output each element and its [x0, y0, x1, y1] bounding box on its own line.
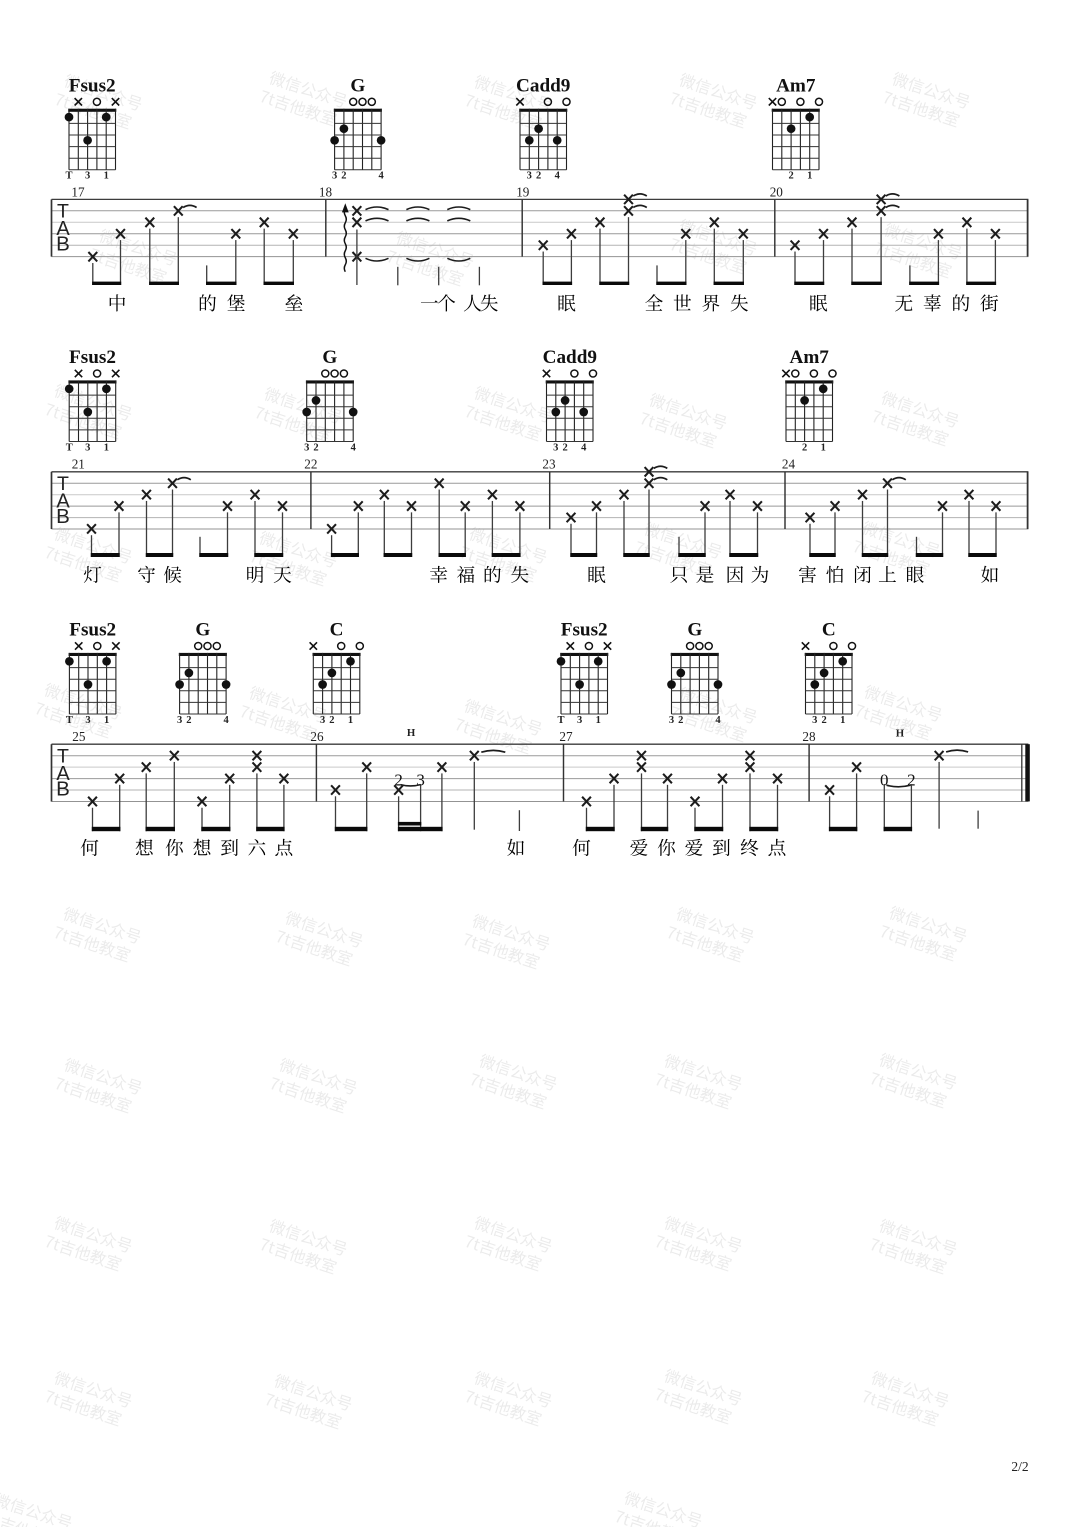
svg-text:G: G	[322, 347, 337, 368]
svg-text:Am7: Am7	[776, 75, 816, 96]
svg-text:20: 20	[770, 184, 784, 199]
svg-text:25: 25	[72, 729, 86, 744]
svg-text:4: 4	[378, 171, 384, 182]
svg-text:B: B	[56, 777, 70, 800]
svg-text:B: B	[56, 505, 70, 528]
svg-text:Fsus2: Fsus2	[561, 620, 608, 641]
svg-text:G: G	[195, 620, 210, 641]
svg-text:C: C	[330, 620, 344, 641]
svg-text:28: 28	[802, 729, 816, 744]
svg-text:H: H	[896, 728, 905, 740]
svg-text:T: T	[65, 171, 72, 182]
svg-text:3: 3	[85, 715, 90, 726]
svg-text:Cadd9: Cadd9	[516, 75, 570, 96]
svg-text:2: 2	[329, 715, 334, 726]
svg-text:19: 19	[516, 184, 530, 199]
svg-text:G: G	[687, 620, 702, 641]
svg-text:T: T	[66, 715, 73, 726]
svg-text:4: 4	[555, 171, 561, 182]
svg-text:22: 22	[304, 457, 317, 472]
svg-text:1: 1	[821, 442, 826, 453]
svg-text:Am7: Am7	[789, 347, 829, 368]
svg-text:3: 3	[85, 171, 90, 182]
svg-text:2: 2	[788, 171, 793, 182]
svg-text:24: 24	[782, 457, 796, 472]
svg-text:2: 2	[341, 171, 346, 182]
svg-text:1: 1	[104, 171, 109, 182]
svg-text:Fsus2: Fsus2	[69, 347, 116, 368]
svg-text:3: 3	[577, 715, 582, 726]
svg-text:23: 23	[542, 457, 556, 472]
svg-text:3: 3	[527, 171, 532, 182]
svg-text:2: 2	[802, 442, 807, 453]
svg-text:2: 2	[562, 442, 567, 453]
svg-text:21: 21	[72, 457, 85, 472]
svg-text:26: 26	[310, 729, 324, 744]
svg-text:3: 3	[85, 442, 90, 453]
svg-text:Fsus2: Fsus2	[69, 75, 116, 96]
svg-text:1: 1	[104, 715, 109, 726]
svg-text:1: 1	[807, 171, 812, 182]
svg-text:3: 3	[669, 715, 674, 726]
svg-text:3: 3	[304, 442, 309, 453]
svg-text:2: 2	[678, 715, 683, 726]
svg-text:1: 1	[596, 715, 601, 726]
svg-text:3: 3	[812, 715, 817, 726]
svg-text:3: 3	[332, 171, 337, 182]
svg-text:4: 4	[223, 715, 229, 726]
svg-text:2: 2	[313, 442, 318, 453]
svg-text:27: 27	[559, 729, 573, 744]
svg-text:Cadd9: Cadd9	[543, 347, 597, 368]
svg-text:4: 4	[715, 715, 721, 726]
svg-text:3: 3	[553, 442, 558, 453]
svg-text:18: 18	[319, 184, 333, 199]
svg-text:4: 4	[351, 442, 357, 453]
svg-text:Fsus2: Fsus2	[69, 620, 116, 641]
svg-text:G: G	[350, 75, 365, 96]
svg-text:B: B	[56, 233, 70, 256]
svg-text:3: 3	[320, 715, 325, 726]
svg-text:T: T	[66, 442, 73, 453]
svg-text:T: T	[557, 715, 564, 726]
svg-text:17: 17	[71, 184, 85, 199]
svg-text:2: 2	[536, 171, 541, 182]
svg-text:C: C	[822, 620, 836, 641]
svg-text:4: 4	[581, 442, 587, 453]
svg-text:2: 2	[821, 715, 826, 726]
svg-text:H: H	[407, 727, 416, 739]
svg-text:1: 1	[348, 715, 353, 726]
svg-text:2/2: 2/2	[1011, 1459, 1028, 1474]
svg-text:2: 2	[186, 715, 191, 726]
svg-text:1: 1	[104, 442, 109, 453]
svg-text:3: 3	[177, 715, 182, 726]
svg-text:1: 1	[840, 715, 845, 726]
